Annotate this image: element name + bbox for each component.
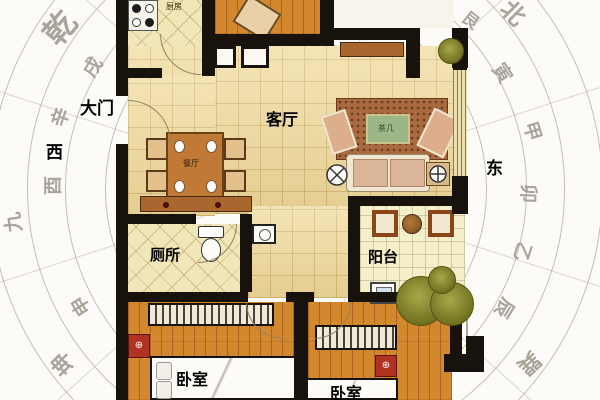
balcony-chair [428,210,454,237]
bedroom-right-label: 卧室 [330,386,362,400]
wall-toilet-right [240,214,252,292]
wall-living-balcony [350,196,468,206]
east-label: 东 [486,160,503,179]
dining-chair [224,170,246,192]
stove-burner [145,18,154,27]
window-right [453,68,467,180]
stove-burner [132,4,141,13]
sideboard-knob [163,202,169,208]
wall-kitchen-bottom [116,68,162,78]
wall-living-toilet [116,214,196,224]
balcony-table [402,214,422,234]
corner-plant [438,38,464,64]
tea-table-label: 茶几 [378,125,394,133]
wall-right-mid [452,176,468,214]
air-conditioner-right: ⊕ [375,355,397,377]
pillow [156,362,172,380]
washbasin [252,224,276,244]
table-lamp-symbol [429,165,447,188]
sofa-cushion [390,159,425,187]
dining-chair [224,138,246,160]
wall-left-upper [116,0,128,96]
wall-bedroom-divider [294,302,308,400]
bedroom-left-label: 卧室 [176,372,208,390]
air-conditioner-left: ⊕ [128,334,150,358]
top-right-room-floor [334,0,454,28]
wall-corner-step-v [466,336,484,356]
basin-bowl [259,229,271,241]
wall-study-right [320,0,334,46]
sideboard [140,196,252,212]
wall-hall-balcony [348,196,360,302]
sofa-cushion [353,159,388,187]
balcony-chair [372,210,398,237]
compass-char-mao: 卯 [518,184,538,204]
plate [206,180,217,193]
compass-char-you: 酉 [44,176,63,195]
dining-room-label: 餐厅 [183,160,199,168]
kitchen-label: 厨房 [166,3,182,11]
floor-lamp-symbol [326,164,348,191]
floorplan-fengshui-image: 乾 戌 辛 酉 九 申 坤 北 艮 寅 甲 卯 乙 辰 巽 餐厅 [0,0,600,400]
sofa [346,154,430,192]
wall-bedroomleft-top [116,292,248,302]
dining-chair [146,170,168,192]
plate [206,140,217,153]
balcony-label: 阳台 [368,250,398,267]
west-label: 西 [46,144,63,163]
tv-cabinet [340,42,404,57]
main-door-label: 大门 [80,100,114,119]
plate [174,180,185,193]
entry-shoe-cabinet [214,46,236,68]
wall-topright-stub [406,28,420,78]
compass-char-jiu: 九 [3,211,26,234]
entry-shoe-cabinet [241,46,269,68]
pillow [156,381,172,399]
wall-hall-bottom-stub [286,292,314,302]
sideboard-knob [215,202,221,208]
balcony-plant [428,266,456,294]
toilet-label: 厕所 [150,248,180,265]
bed-left [150,356,296,400]
hallway-floor [248,206,350,298]
wall-corner-step-h [444,354,484,372]
stove-burner [145,4,154,13]
gas-stove [128,0,158,31]
wall-study-bottom [214,34,334,46]
stove-burner [132,18,141,27]
wall-left-lower [116,144,128,400]
plate [174,140,185,153]
living-room-label: 客厅 [266,112,298,130]
